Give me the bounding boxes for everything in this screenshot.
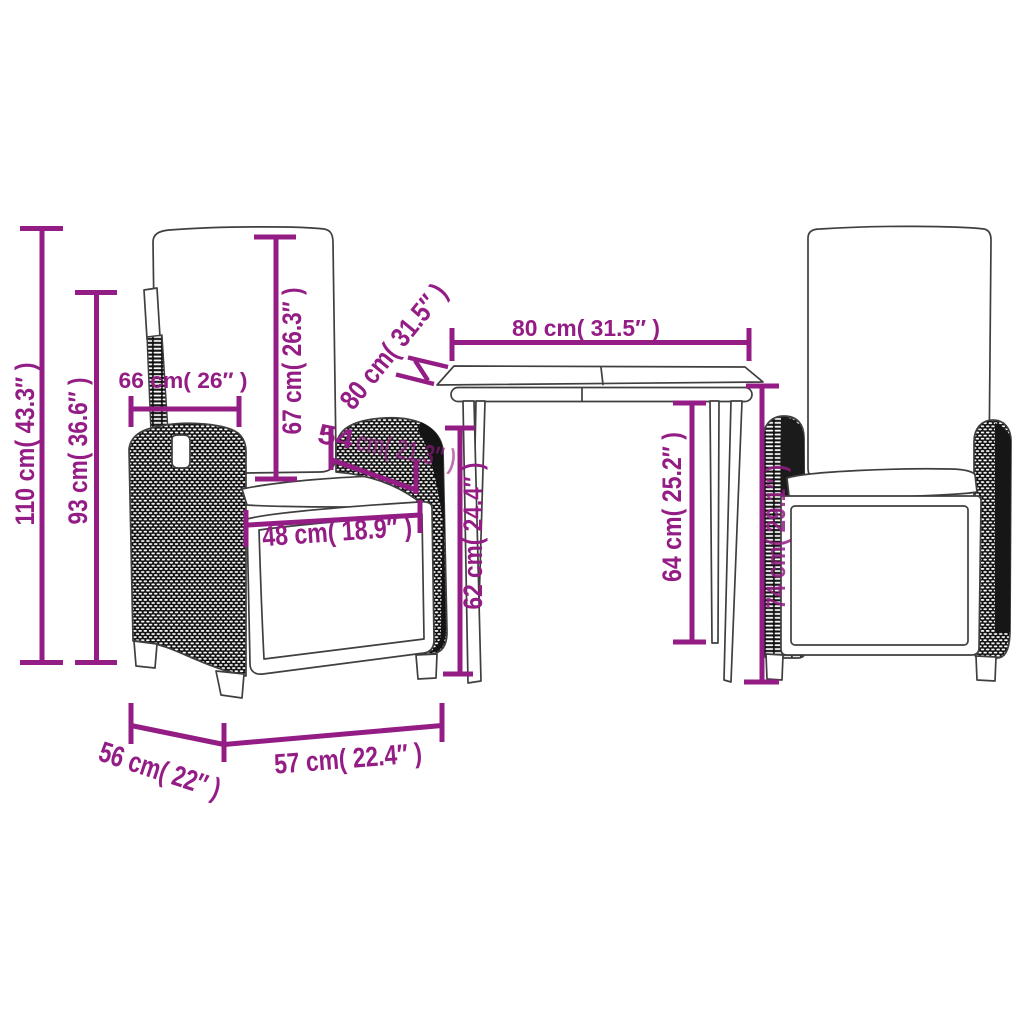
svg-text:80 cm( 31.5″ ): 80 cm( 31.5″ )	[512, 315, 660, 341]
svg-text:74 cm( 29.1″ ): 74 cm( 29.1″ )	[761, 465, 791, 610]
svg-text:110 cm( 43.3″ ): 110 cm( 43.3″ )	[10, 363, 40, 526]
svg-text:62 cm( 24.4″ ): 62 cm( 24.4″ )	[458, 463, 488, 610]
svg-text:64 cm( 25.2″ ): 64 cm( 25.2″ )	[657, 432, 687, 582]
svg-text:66 cm( 26″ ): 66 cm( 26″ )	[119, 368, 248, 393]
svg-text:67 cm( 26.3″ ): 67 cm( 26.3″ )	[277, 288, 307, 435]
svg-text:93 cm( 36.6″ ): 93 cm( 36.6″ )	[63, 378, 93, 525]
